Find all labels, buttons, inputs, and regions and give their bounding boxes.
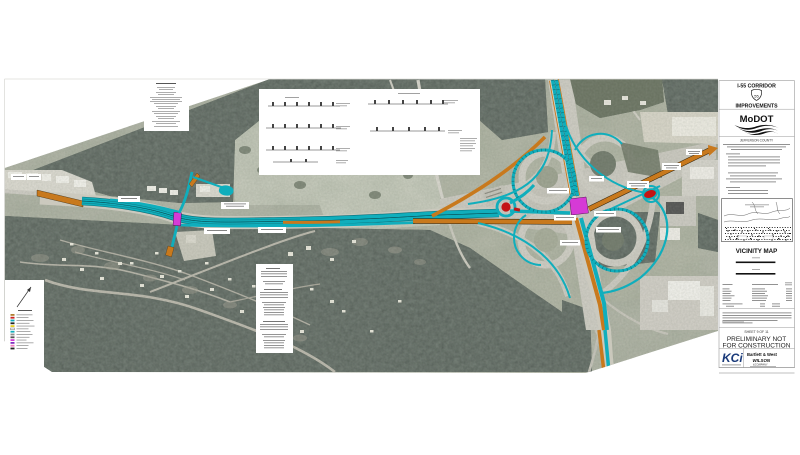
svg-text:IMPROVEMENTS: IMPROVEMENTS xyxy=(735,104,778,110)
svg-text:Bartlett & West: Bartlett & West xyxy=(747,352,778,357)
svg-text:KCi: KCi xyxy=(722,351,743,365)
svg-text:SHEET 9 OF 11: SHEET 9 OF 11 xyxy=(744,330,768,334)
svg-text:I-55 CORRIDOR: I-55 CORRIDOR xyxy=(737,84,776,90)
svg-text:&COMPANY: &COMPANY xyxy=(753,363,768,367)
svg-text:MoDOT: MoDOT xyxy=(740,114,774,125)
svg-text:VICINITY MAP: VICINITY MAP xyxy=(736,248,778,255)
svg-text:JEFFERSON COUNTY: JEFFERSON COUNTY xyxy=(740,139,774,143)
svg-text:FOR CONSTRUCTION: FOR CONSTRUCTION xyxy=(723,342,791,349)
svg-text:WILSON: WILSON xyxy=(753,358,771,363)
svg-text:55: 55 xyxy=(754,93,759,98)
